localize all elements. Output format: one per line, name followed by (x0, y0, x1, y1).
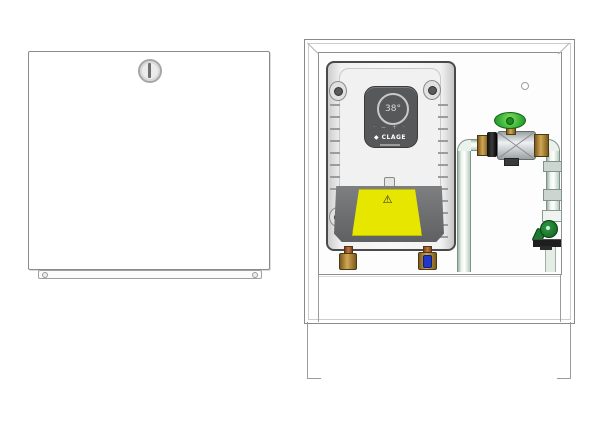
base-frame-right-leg (570, 322, 571, 379)
temperature-display-value: 38° (385, 105, 401, 114)
cabinet-bottom-strip (38, 270, 262, 279)
strip-screw-right (252, 272, 258, 278)
warning-triangle-icon: ⚠ (381, 193, 394, 206)
coin-lock-icon (138, 59, 162, 83)
handle-hub (506, 117, 514, 125)
brand-logo: ◆ CLAGE (366, 134, 414, 142)
model-name-bar (380, 144, 400, 146)
mounting-screw-top-right (423, 80, 441, 100)
valve-green-handle (494, 112, 526, 129)
screw-icon (334, 87, 343, 96)
pipe-coupling-lower (543, 189, 562, 201)
heater-button-row: · − + · (370, 124, 410, 132)
frame-side-wall-right (560, 274, 561, 322)
pipe-coupling-upper (543, 161, 562, 172)
base-frame-left-leg (307, 322, 308, 379)
valve-bottom-port (504, 158, 519, 166)
valve-union-nut-right (534, 134, 549, 157)
valve-seal-ring (487, 132, 497, 157)
vent-slots-left (330, 104, 340, 196)
cold-inlet-blue-insert (423, 255, 432, 268)
outlet-valve-body (540, 220, 558, 238)
back-panel-hole (521, 82, 529, 90)
base-frame-foot-right (557, 378, 571, 379)
outlet-valve-stub (540, 246, 552, 250)
outlet-valve-hub (546, 226, 550, 230)
mounting-screw-top-left (329, 81, 347, 101)
closed-cabinet-front-panel (28, 51, 270, 270)
base-frame-foot-left (307, 378, 321, 379)
shutoff-valve-body (497, 131, 536, 160)
screw-icon (428, 86, 437, 95)
strip-screw-left (42, 272, 48, 278)
hot-outlet-brass-fitting (339, 253, 357, 270)
frame-shelf-line (319, 276, 560, 277)
lock-slot (148, 63, 151, 78)
illustration-canvas: 38° · − + · ◆ CLAGE ⚠ (0, 0, 600, 424)
down-pipe-left (457, 151, 471, 272)
frame-side-wall-left (318, 274, 319, 322)
temperature-display-ring: 38° (377, 93, 409, 125)
